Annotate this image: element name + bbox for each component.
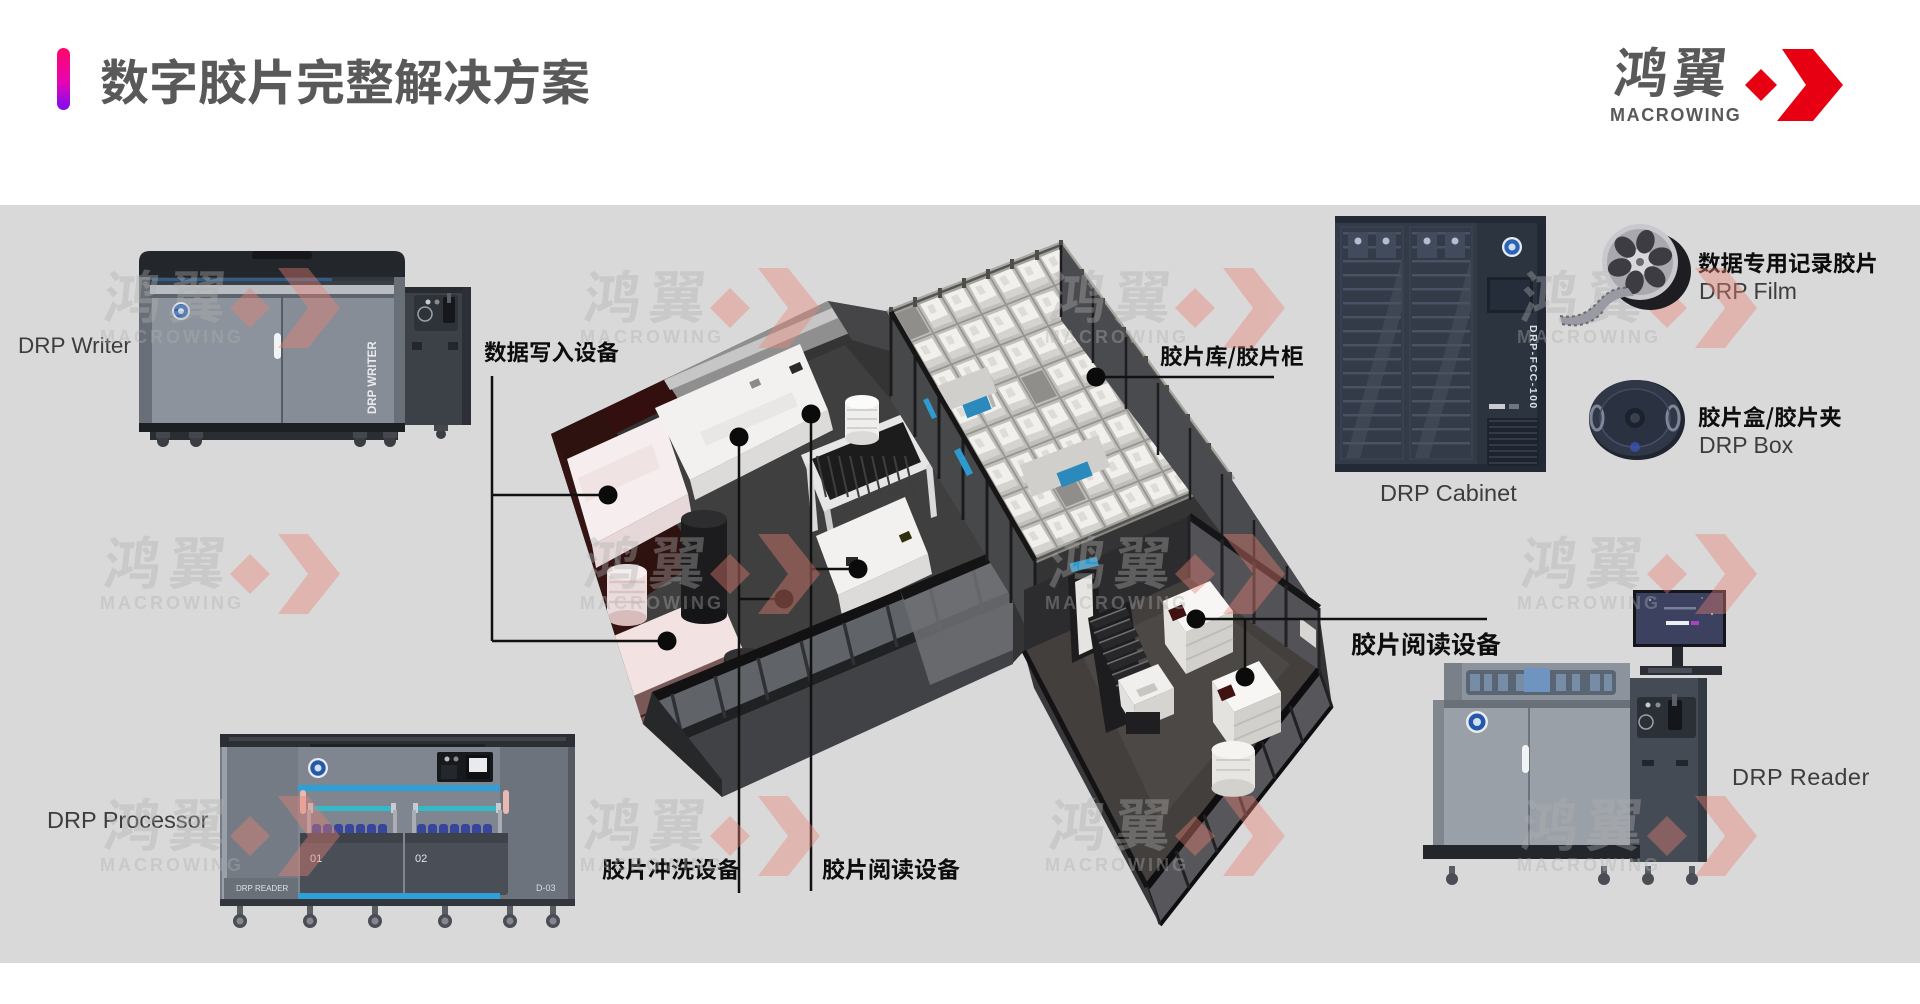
svg-text:DRP WRITER: DRP WRITER bbox=[367, 341, 379, 414]
svg-text:MACROWING: MACROWING bbox=[1610, 105, 1741, 125]
svg-text:DRP READER: DRP READER bbox=[236, 884, 289, 893]
svg-text:DRP Cabinet: DRP Cabinet bbox=[1380, 480, 1517, 506]
svg-text:02: 02 bbox=[415, 853, 427, 865]
svg-text:D-03: D-03 bbox=[536, 883, 556, 893]
svg-text:DRP Box: DRP Box bbox=[1699, 432, 1794, 458]
svg-text:DRP Reader: DRP Reader bbox=[1732, 764, 1870, 790]
